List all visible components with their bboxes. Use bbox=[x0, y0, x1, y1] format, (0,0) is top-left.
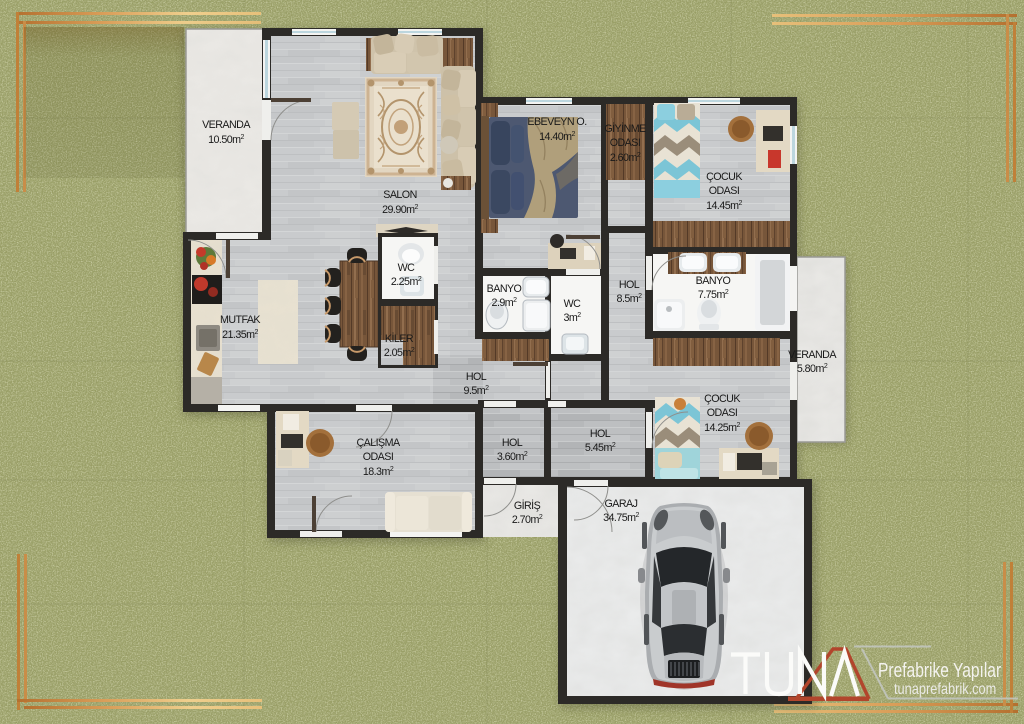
svg-text:2.05m2: 2.05m2 bbox=[384, 347, 415, 359]
svg-text:HOL: HOL bbox=[466, 371, 487, 383]
svg-text:10.50m2: 10.50m2 bbox=[208, 134, 244, 146]
svg-text:KİLER: KİLER bbox=[385, 332, 414, 345]
svg-text:Prefabrike Yapılar: Prefabrike Yapılar bbox=[878, 659, 1001, 682]
svg-text:5.80m2: 5.80m2 bbox=[797, 363, 828, 375]
svg-text:HOL: HOL bbox=[590, 428, 611, 440]
svg-text:ODASI: ODASI bbox=[363, 451, 394, 463]
svg-text:GARAJ: GARAJ bbox=[605, 498, 638, 510]
svg-text:29.90m2: 29.90m2 bbox=[382, 204, 418, 216]
svg-text:SALON: SALON bbox=[383, 189, 416, 201]
svg-text:3.60m2: 3.60m2 bbox=[497, 451, 528, 463]
svg-text:2.25m2: 2.25m2 bbox=[391, 276, 422, 288]
svg-text:14.25m2: 14.25m2 bbox=[704, 422, 740, 434]
svg-text:VERANDA: VERANDA bbox=[788, 349, 837, 361]
svg-text:5.45m2: 5.45m2 bbox=[585, 442, 616, 454]
svg-text:HOL: HOL bbox=[619, 279, 640, 291]
svg-text:BANYO: BANYO bbox=[696, 275, 731, 287]
svg-text:HOL: HOL bbox=[502, 437, 523, 449]
svg-text:ODASI: ODASI bbox=[610, 137, 641, 149]
svg-text:BANYO: BANYO bbox=[487, 283, 522, 295]
svg-text:2.60m2: 2.60m2 bbox=[610, 152, 641, 164]
svg-text:EBEVEYN O.: EBEVEYN O. bbox=[527, 116, 586, 128]
svg-text:18.3m2: 18.3m2 bbox=[363, 466, 394, 478]
svg-text:ÇALIŞMA: ÇALIŞMA bbox=[356, 437, 400, 449]
svg-text:2.70m2: 2.70m2 bbox=[512, 514, 543, 526]
svg-text:tunaprefabrik.com: tunaprefabrik.com bbox=[894, 681, 996, 699]
svg-text:14.40m2: 14.40m2 bbox=[539, 131, 575, 143]
svg-text:ÇOCUK: ÇOCUK bbox=[706, 171, 743, 183]
svg-text:ODASI: ODASI bbox=[707, 407, 738, 419]
svg-text:GİRİŞ: GİRİŞ bbox=[514, 499, 541, 512]
svg-text:34.75m2: 34.75m2 bbox=[603, 512, 639, 524]
svg-text:21.35m2: 21.35m2 bbox=[222, 329, 258, 341]
svg-text:WC: WC bbox=[398, 262, 416, 274]
svg-text:WC: WC bbox=[564, 298, 582, 310]
svg-text:14.45m2: 14.45m2 bbox=[706, 200, 742, 212]
svg-text:ODASI: ODASI bbox=[709, 185, 740, 197]
svg-text:VERANDA: VERANDA bbox=[202, 119, 251, 131]
svg-text:MUTFAK: MUTFAK bbox=[220, 314, 261, 326]
svg-text:ÇOCUK: ÇOCUK bbox=[704, 393, 741, 405]
svg-text:7.75m2: 7.75m2 bbox=[698, 289, 729, 301]
svg-text:GİYİNME: GİYİNME bbox=[604, 122, 646, 135]
